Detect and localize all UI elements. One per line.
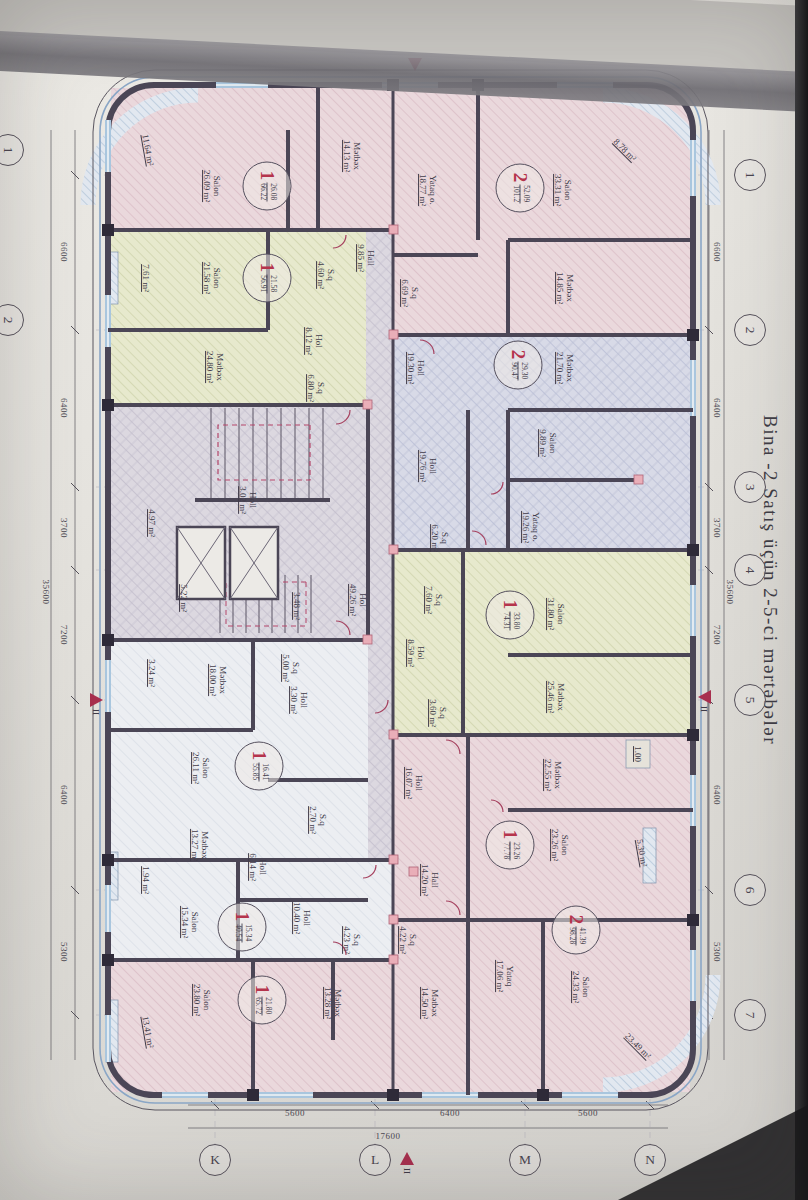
room-area: 3.48 m² — [292, 592, 302, 620]
room-area: 18.00 m² — [208, 664, 218, 696]
dimension-label: 6400 — [440, 1108, 460, 1118]
room-label: S.q3.60 m² — [428, 699, 448, 727]
room-area: 23.80 m² — [192, 984, 202, 1016]
apartment-badge: 115.3440.54 — [218, 903, 267, 952]
apartment-badge: 121.8065.72 — [238, 976, 287, 1025]
room-name: S.q — [410, 279, 420, 307]
room-area: 26.09 m² — [202, 170, 212, 202]
dimension-label: 3700 — [712, 518, 722, 538]
room-label: S.q7.60 m² — [424, 586, 444, 614]
room-name: S.q — [408, 926, 418, 954]
room-area: 24.80 m² — [205, 351, 215, 383]
room-area: 4.23 m² — [342, 926, 352, 954]
room-label: Salon33.31 m² — [553, 174, 573, 206]
apartment-badge: 241.3998.28 — [552, 906, 601, 955]
room-area: 13.27 m² — [190, 829, 200, 861]
room-count: 1 — [499, 830, 521, 840]
room-area: 8.59 m² — [406, 639, 416, 667]
room-area: 14.85 m² — [555, 272, 565, 304]
room-label: Salon23.80 m² — [192, 984, 212, 1016]
room-label: Salon26.09 m² — [202, 170, 222, 202]
room-area: 6.80 m² — [306, 374, 316, 402]
room-area: 9.85 m² — [356, 244, 366, 272]
floorplan-photo: Bina -2 Satış üçün 2-5-ci mərtəbələrSalo… — [0, 0, 808, 1200]
total-area: 40.54 — [233, 923, 242, 942]
dimension-label: 6600 — [712, 242, 722, 262]
room-area: 26.11 m² — [191, 752, 201, 784]
photo-edge-right — [795, 0, 808, 1200]
room-label: S.q4.23 m² — [342, 926, 362, 954]
grid-bubble-4: 4 — [734, 554, 766, 586]
room-label: S.q2.70 m² — [308, 806, 328, 834]
room-label: 1.94 m² — [141, 866, 151, 894]
section-label: II — [91, 709, 101, 715]
room-label: Mətbəx24.80 m² — [205, 351, 225, 383]
room-count: 1 — [256, 263, 278, 273]
room-label: Mətbəx14.13 m² — [342, 140, 362, 172]
grid-bubble-K: K — [199, 1144, 231, 1176]
total-area: 77.78 — [501, 841, 510, 860]
room-area: 19.26 m² — [521, 511, 531, 543]
room-label: Holl16.07 m² — [404, 767, 424, 799]
section-arrow-icon — [90, 693, 103, 707]
floor-plan-svg — [0, 0, 808, 1200]
dimension-total: 35600 — [41, 580, 51, 605]
room-area: 6.20 m² — [430, 524, 440, 552]
room-count: 2 — [565, 915, 587, 925]
room-name: S.q — [434, 586, 444, 614]
apartment-badge: 229.3090.47 — [494, 341, 543, 390]
room-area: 31.80 m² — [546, 598, 556, 630]
total-area: 101.2 — [511, 184, 520, 203]
room-label: Salon21.58 m² — [202, 262, 222, 294]
room-label: Hol49.26 m² — [348, 584, 368, 616]
living-area: 26.08 — [267, 182, 277, 201]
room-name: Mətbəx — [333, 987, 343, 1019]
apartment-badge: 116.4155.85 — [235, 742, 284, 791]
room-name: Holl — [258, 853, 268, 881]
living-area: 15.34 — [242, 923, 252, 942]
room-area: 23.26 m² — [550, 829, 560, 861]
room-name: Salon — [556, 598, 566, 630]
living-area: 41.39 — [576, 926, 586, 945]
dimension-label: 5600 — [285, 1108, 305, 1118]
room-name: Salon — [212, 262, 222, 294]
grid-bubble-1: 1 — [734, 159, 766, 191]
room-label: Hol8.59 m² — [406, 639, 426, 667]
room-name: Holl — [414, 767, 424, 799]
room-label: 7.61 m² — [141, 264, 151, 292]
room-area: 21.70 m² — [555, 352, 565, 384]
room-label: S.q6.20 m² — [430, 524, 450, 552]
room-label: Holl3.30 m² — [289, 686, 309, 714]
dimension-label: 6400 — [712, 398, 722, 418]
room-label: 5.22 m² — [179, 584, 189, 612]
total-area: 66.22 — [258, 182, 267, 201]
dimension-label: 5300 — [712, 942, 722, 962]
room-name: Hall — [430, 864, 440, 896]
room-name: Salon — [201, 752, 211, 784]
room-name: S.q — [318, 806, 328, 834]
living-area: 52.09 — [520, 184, 530, 203]
grid-bubble-M: M — [509, 1144, 541, 1176]
room-label: Holl19.30 m² — [406, 352, 426, 384]
room-label: 3.24 m² — [147, 659, 157, 687]
room-name: Salon — [560, 829, 570, 861]
room-area: 4.60 m² — [316, 261, 326, 289]
dimension-label: 5300 — [59, 942, 69, 962]
room-name: Mətbəx — [430, 987, 440, 1019]
grid-bubble-L: L — [359, 1144, 391, 1176]
room-label: 4.97 m² — [147, 509, 157, 537]
room-name: Mətbəx — [556, 681, 566, 713]
dimension-label: 6400 — [712, 785, 722, 805]
room-label: S.q5.00 m² — [281, 654, 301, 682]
room-name: Mətbəx — [215, 351, 225, 383]
room-name: Holl — [416, 352, 426, 384]
room-area: 1.00 — [633, 746, 643, 762]
grid-bubble-3: 3 — [734, 471, 766, 503]
room-name: Holl — [428, 450, 438, 482]
room-name: Mətbəx — [352, 140, 362, 172]
room-area: 18.77 m² — [418, 174, 428, 206]
dimension-label: 6400 — [59, 785, 69, 805]
room-name: Holl — [302, 902, 312, 934]
room-area: 8.12 m² — [304, 327, 314, 355]
dimension-total: 17600 — [376, 1131, 401, 1141]
dimension-label: 7200 — [59, 625, 69, 645]
room-label: Holl10.40 m² — [292, 902, 312, 934]
total-area: 56.91 — [258, 274, 267, 293]
grid-bubble-2: 2 — [734, 314, 766, 346]
room-label: Yataq17.06 m² — [495, 960, 515, 992]
room-label: Holl19.76 m² — [418, 450, 438, 482]
dimension-label: 3700 — [59, 518, 69, 538]
dimension-label: 5600 — [578, 1108, 598, 1118]
room-name: Salon — [190, 906, 200, 938]
room-name: Hall — [366, 244, 376, 272]
room-label: 1.00 — [633, 746, 643, 762]
floor-plan: Bina -2 Satış üçün 2-5-ci mərtəbələrSalo… — [0, 0, 808, 1200]
room-label: Holl6.14 m² — [248, 853, 268, 881]
room-area: 49.26 m² — [348, 584, 358, 616]
apartment-badge: 133.8074.31 — [486, 591, 535, 640]
grid-bubble-5: 5 — [734, 684, 766, 716]
room-count: 2 — [507, 350, 529, 360]
room-count: 1 — [248, 751, 270, 761]
room-name: Mətbəx — [565, 352, 575, 384]
room-label: Salon24.33 m² — [571, 971, 591, 1003]
total-area: 98.28 — [567, 926, 576, 945]
room-label: Hol8.12 m² — [304, 327, 324, 355]
room-area: 3.60 m² — [428, 699, 438, 727]
room-label: Salon31.80 m² — [546, 598, 566, 630]
room-label: Salon15.34 m² — [180, 906, 200, 938]
room-name: S.q — [438, 699, 448, 727]
room-area: 3.24 m² — [147, 659, 157, 687]
room-label: Salon26.11 m² — [191, 752, 211, 784]
section-marker: II — [90, 693, 103, 707]
room-label: Mətbəx18.00 m² — [208, 664, 228, 696]
room-area: 17.06 m² — [495, 960, 505, 992]
room-label: S.q6.69 m² — [400, 279, 420, 307]
room-label: Yataq o.18.77 m² — [418, 174, 438, 206]
section-marker: II — [698, 690, 711, 704]
grid-bubble-6: 6 — [734, 874, 766, 906]
room-label: Hall14.20 m² — [420, 864, 440, 896]
room-name: Mətbəx — [553, 759, 563, 791]
room-label: Mətbəx25.46 m² — [546, 681, 566, 713]
room-area: 33.31 m² — [553, 174, 563, 206]
room-area: 5.22 m² — [179, 584, 189, 612]
grid-bubble-7: 7 — [734, 999, 766, 1031]
room-name: Holl — [248, 486, 258, 514]
room-name: Mətbəx — [200, 829, 210, 861]
room-name: S.q — [316, 374, 326, 402]
room-area: 7.60 m² — [424, 586, 434, 614]
room-area: 24.33 m² — [571, 971, 581, 1003]
room-name: Salon — [202, 984, 212, 1016]
room-count: 2 — [509, 173, 531, 183]
room-count: 1 — [251, 985, 273, 995]
room-area: 5.00 m² — [281, 654, 291, 682]
room-count: 1 — [231, 912, 253, 922]
room-name: S.q — [291, 654, 301, 682]
room-count: 1 — [499, 600, 521, 610]
room-area: 7.61 m² — [141, 264, 151, 292]
room-area: 10.40 m² — [292, 902, 302, 934]
section-label: II — [699, 706, 709, 712]
room-label: Mətbəx14.85 m² — [555, 272, 575, 304]
room-area: 22.55 m² — [543, 759, 553, 791]
room-label: 3.48 m² — [292, 592, 302, 620]
room-name: Salon — [581, 971, 591, 1003]
room-name: Hol — [314, 327, 324, 355]
room-area: 2.70 m² — [308, 806, 318, 834]
room-area: 16.07 m² — [404, 767, 414, 799]
room-area: 13.28 m² — [323, 987, 333, 1019]
total-area: 65.72 — [253, 996, 262, 1015]
room-area: 3.30 m² — [289, 686, 299, 714]
room-area: 4.97 m² — [147, 509, 157, 537]
room-name: Hol — [358, 584, 368, 616]
dimension-label: 6400 — [59, 398, 69, 418]
room-label: Holl3.02 m² — [238, 486, 258, 514]
room-area: 14.20 m² — [420, 864, 430, 896]
dimension-label: 6600 — [59, 242, 69, 262]
room-area: 25.46 m² — [546, 681, 556, 713]
room-name: Salon — [563, 174, 573, 206]
room-name: Holl — [299, 686, 309, 714]
room-area: 9.89 m² — [538, 429, 548, 457]
grid-bubble-N: N — [634, 1144, 666, 1176]
room-area: 6.14 m² — [248, 853, 258, 881]
room-area: 4.22 m² — [398, 926, 408, 954]
apartment-badge: 126.0866.22 — [243, 162, 292, 211]
room-label: S.q4.60 m² — [316, 261, 336, 289]
room-name: Salon — [548, 429, 558, 457]
living-area: 29.30 — [518, 361, 528, 380]
room-label: Salon9.89 m² — [538, 429, 558, 457]
room-label: Mətbəx21.70 m² — [555, 352, 575, 384]
room-area: 3.02 m² — [238, 486, 248, 514]
living-area: 21.80 — [262, 996, 272, 1015]
room-count: 1 — [256, 171, 278, 181]
room-area: 19.76 m² — [418, 450, 428, 482]
room-name: S.q — [352, 926, 362, 954]
room-label: Mətbəx22.55 m² — [543, 759, 563, 791]
total-area: 74.31 — [501, 611, 510, 630]
total-area: 55.85 — [250, 762, 259, 781]
room-label: Yataq o.19.26 m² — [521, 511, 541, 543]
room-name: Yataq — [505, 960, 515, 992]
room-label: Mətbəx14.50 m² — [420, 987, 440, 1019]
apartment-badge: 252.09101.2 — [496, 164, 545, 213]
section-marker: II — [400, 1152, 414, 1165]
dimension-total: 35600 — [725, 580, 735, 605]
room-name: S.q — [326, 261, 336, 289]
apartment-badge: 123.2677.78 — [486, 821, 535, 870]
room-label: Mətbəx13.28 m² — [323, 987, 343, 1019]
room-label: S.q6.80 m² — [306, 374, 326, 402]
room-label: Mətbəx13.27 m² — [190, 829, 210, 861]
room-label: S.q4.22 m² — [398, 926, 418, 954]
room-name: S.q — [440, 524, 450, 552]
living-area: 23.26 — [510, 841, 520, 860]
room-area: 14.50 m² — [420, 987, 430, 1019]
room-name: Yataq o. — [428, 174, 438, 206]
room-name: Salon — [212, 170, 222, 202]
room-area: 19.30 m² — [406, 352, 416, 384]
room-label: Salon23.26 m² — [550, 829, 570, 861]
room-name: Mətbəx — [218, 664, 228, 696]
room-area: 15.34 m² — [180, 906, 190, 938]
room-name: Mətbəx — [565, 272, 575, 304]
room-label: Hall9.85 m² — [356, 244, 376, 272]
room-area: 1.94 m² — [141, 866, 151, 894]
living-area: 16.41 — [259, 762, 269, 781]
room-area: 21.58 m² — [202, 262, 212, 294]
section-arrow-icon — [698, 690, 711, 704]
room-name: Hol — [416, 639, 426, 667]
section-arrow-icon — [400, 1152, 414, 1165]
room-area: 14.13 m² — [342, 140, 352, 172]
room-name: Yataq o. — [531, 511, 541, 543]
living-area: 33.80 — [510, 611, 520, 630]
dimension-label: 7200 — [712, 625, 722, 645]
total-area: 90.47 — [509, 361, 518, 380]
room-area: 6.69 m² — [400, 279, 410, 307]
apartment-badge: 121.5856.91 — [243, 254, 292, 303]
section-label: II — [402, 1168, 412, 1174]
living-area: 21.58 — [267, 274, 277, 293]
